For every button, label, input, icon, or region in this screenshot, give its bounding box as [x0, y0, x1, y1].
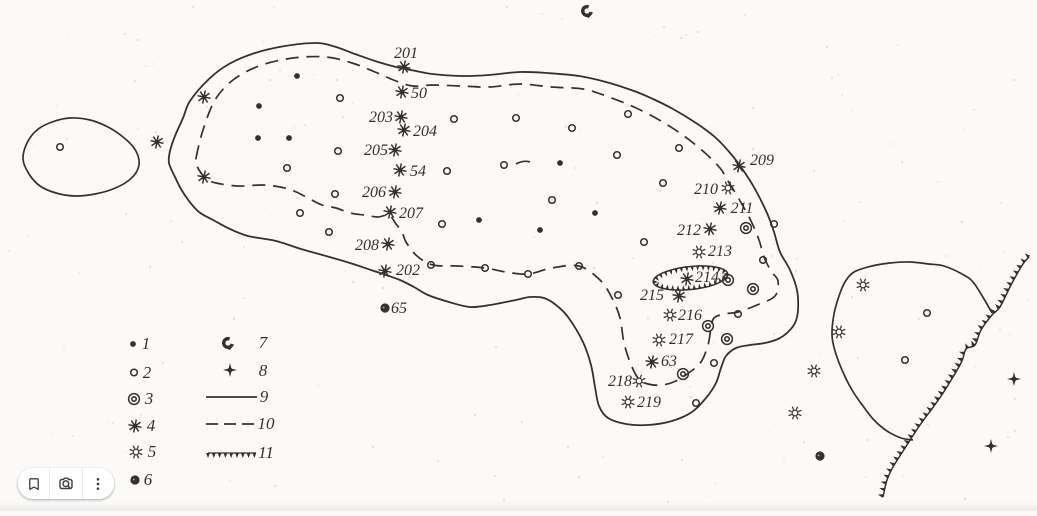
svg-text:10: 10	[258, 414, 276, 433]
svg-text:204: 204	[413, 123, 437, 140]
svg-text:216: 216	[678, 307, 702, 324]
svg-text:215: 215	[640, 287, 664, 304]
svg-text:219: 219	[637, 394, 661, 411]
svg-text:218: 218	[608, 373, 632, 390]
svg-text:11: 11	[258, 443, 274, 462]
svg-text:202: 202	[396, 262, 420, 279]
svg-text:210: 210	[694, 181, 718, 198]
svg-text:209: 209	[750, 152, 774, 169]
svg-text:4: 4	[147, 416, 156, 435]
svg-text:213: 213	[708, 243, 732, 260]
svg-text:211: 211	[731, 200, 754, 217]
svg-text:5: 5	[148, 442, 157, 461]
svg-text:2: 2	[143, 363, 152, 382]
svg-text:206: 206	[362, 184, 386, 201]
svg-text:212: 212	[677, 222, 701, 239]
svg-text:3: 3	[144, 389, 154, 408]
svg-text:1: 1	[142, 334, 151, 353]
svg-text:205: 205	[364, 142, 388, 159]
svg-text:208: 208	[355, 237, 379, 254]
svg-text:217: 217	[669, 331, 694, 348]
svg-text:201: 201	[394, 45, 418, 62]
svg-text:207: 207	[399, 205, 424, 222]
svg-text:6: 6	[144, 470, 153, 489]
svg-text:50: 50	[411, 85, 427, 102]
svg-text:65: 65	[391, 300, 407, 317]
svg-text:54: 54	[410, 163, 426, 180]
svg-text:7: 7	[259, 333, 269, 352]
svg-text:8: 8	[259, 361, 268, 380]
svg-text:203: 203	[369, 109, 393, 126]
svg-text:214: 214	[695, 269, 719, 286]
svg-text:63: 63	[661, 353, 677, 370]
svg-text:9: 9	[260, 387, 269, 406]
